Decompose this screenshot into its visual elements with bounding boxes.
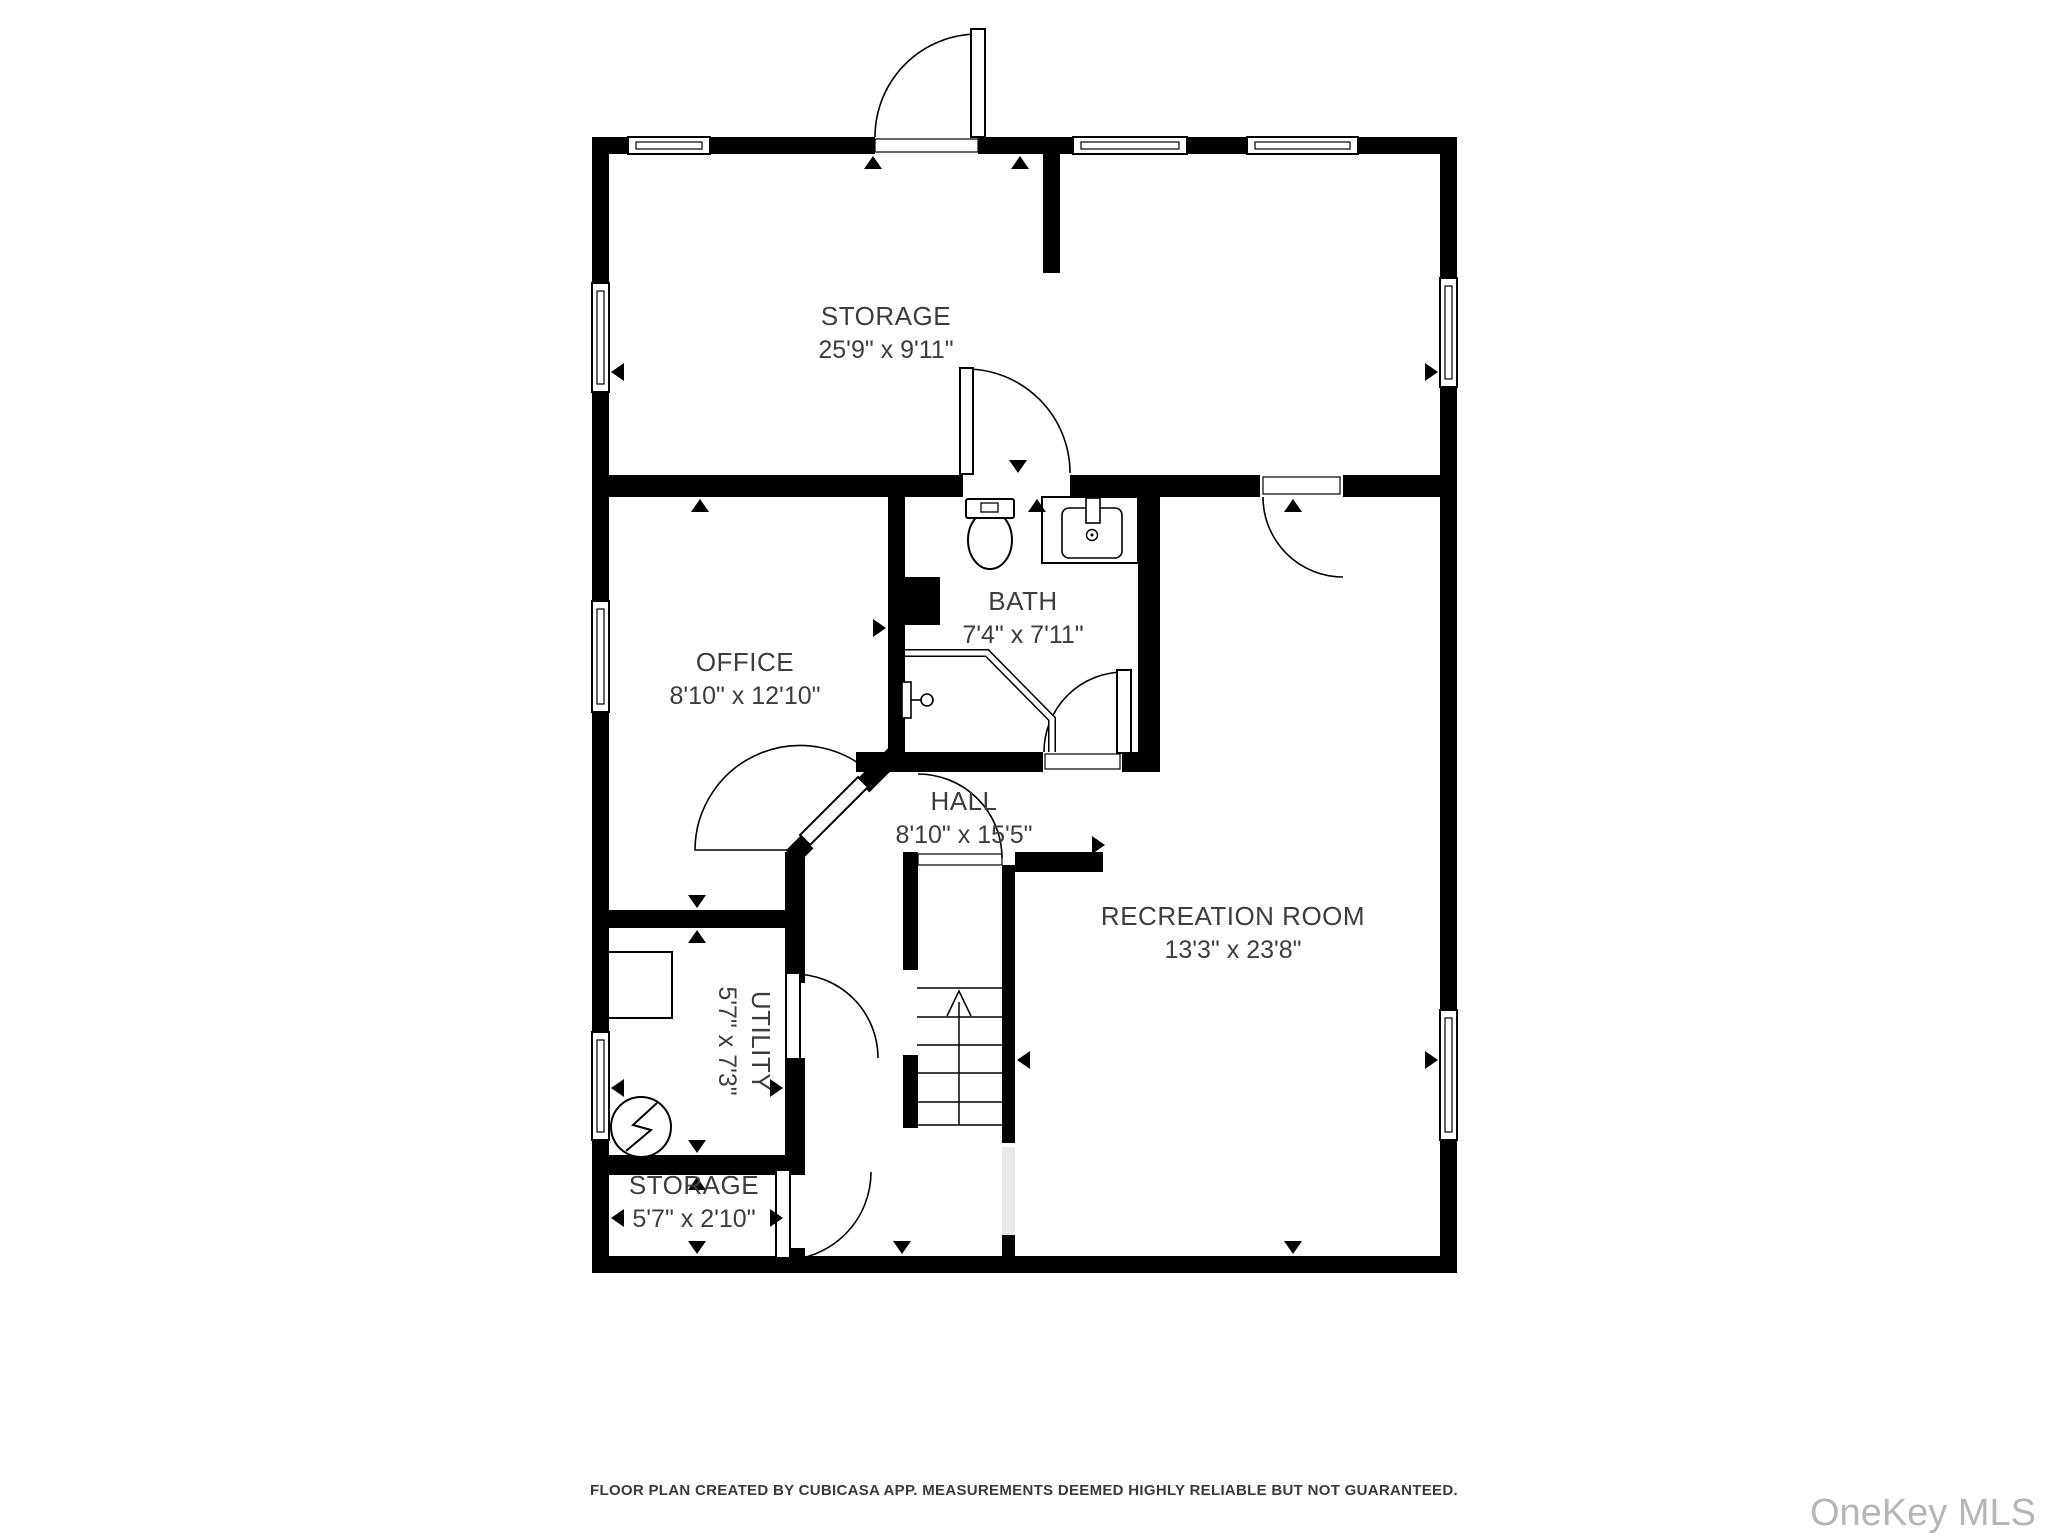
- window-icon: [628, 137, 710, 154]
- appliance-icon: [608, 952, 672, 1018]
- window-icon: [1440, 1010, 1457, 1140]
- toilet-icon: [966, 499, 1014, 569]
- room-label-bath: BATH 7'4" x 7'11": [962, 584, 1083, 652]
- shower-icon: [902, 653, 1052, 752]
- room-name: STORAGE: [629, 1168, 759, 1202]
- window-icon: [592, 1032, 609, 1140]
- room-label-storage-upper: STORAGE 25'9" x 9'11": [818, 299, 953, 367]
- footer-disclaimer: FLOOR PLAN CREATED BY CUBICASA APP. MEAS…: [0, 1482, 2048, 1499]
- room-dims: 5'7" x 2'10": [629, 1202, 759, 1236]
- water-heater-icon: [611, 1097, 671, 1157]
- door-icon: [1263, 477, 1343, 577]
- floor-plan-page: STORAGE 25'9" x 9'11" OFFICE 8'10" x 12'…: [0, 0, 2048, 1536]
- door-icon: [776, 1170, 871, 1260]
- onekey-mls-watermark: OneKey MLS: [1810, 1492, 2036, 1535]
- passage-opening: [1002, 1147, 1015, 1235]
- sink-icon: [1042, 497, 1138, 563]
- room-label-storage-lower: STORAGE 5'7" x 2'10": [629, 1168, 759, 1236]
- room-name: BATH: [962, 584, 1083, 618]
- door-icon: [960, 368, 1070, 474]
- room-name: UTILITY: [744, 986, 778, 1095]
- room-dims: 7'4" x 7'11": [962, 618, 1083, 652]
- window-icon: [592, 601, 609, 712]
- room-name: OFFICE: [669, 645, 820, 679]
- room-name: HALL: [895, 784, 1032, 818]
- room-label-hall: HALL 8'10" x 15'5": [895, 784, 1032, 852]
- window-icon: [592, 283, 609, 392]
- window-icon: [1247, 137, 1358, 154]
- room-label-office: OFFICE 8'10" x 12'10": [669, 645, 820, 713]
- stairs-icon: [917, 988, 1002, 1125]
- floor-plan-drawing: [0, 0, 2048, 1536]
- room-label-utility: UTILITY 5'7" x 7'3": [710, 986, 778, 1095]
- room-name: STORAGE: [818, 299, 953, 333]
- door-icon: [786, 973, 878, 1059]
- room-dims: 5'7" x 7'3": [710, 986, 744, 1095]
- door-icon: [695, 745, 874, 850]
- room-dims: 8'10" x 12'10": [669, 679, 820, 713]
- room-dims: 8'10" x 15'5": [895, 818, 1032, 852]
- window-icon: [1073, 137, 1187, 154]
- room-name: RECREATION ROOM: [1101, 899, 1365, 933]
- room-dims: 13'3" x 23'8": [1101, 933, 1365, 967]
- door-icon: [1044, 670, 1131, 769]
- door-icon: [875, 29, 985, 152]
- room-dims: 25'9" x 9'11": [818, 333, 953, 367]
- window-icon: [1440, 278, 1457, 387]
- room-label-recreation-room: RECREATION ROOM 13'3" x 23'8": [1101, 899, 1365, 967]
